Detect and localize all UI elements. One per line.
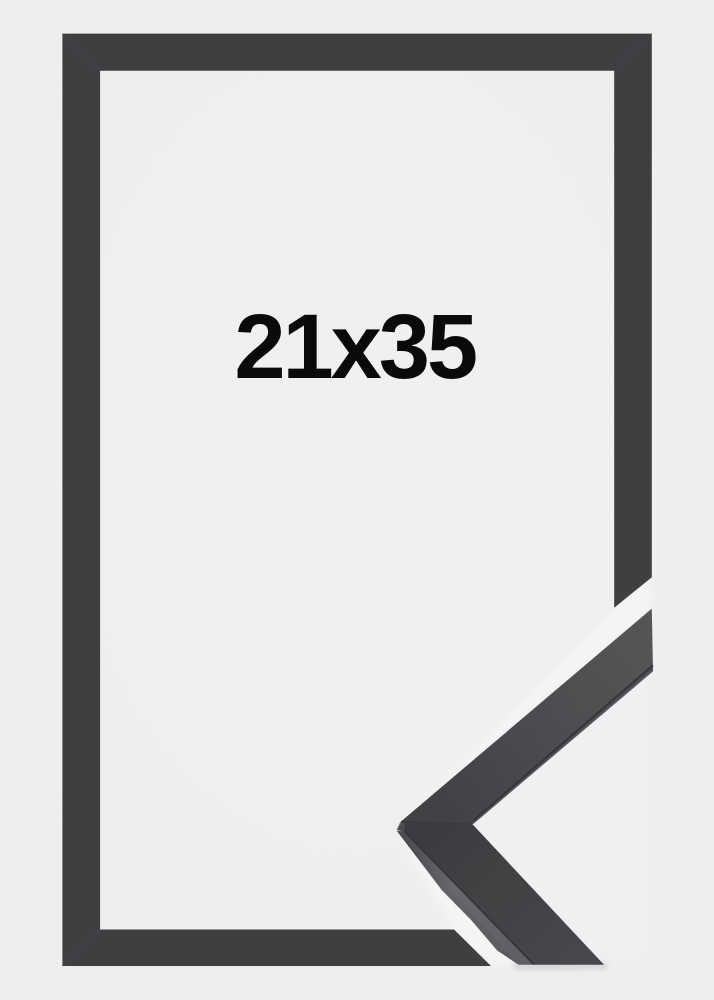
svg-text:21x35: 21x35 <box>234 295 475 398</box>
